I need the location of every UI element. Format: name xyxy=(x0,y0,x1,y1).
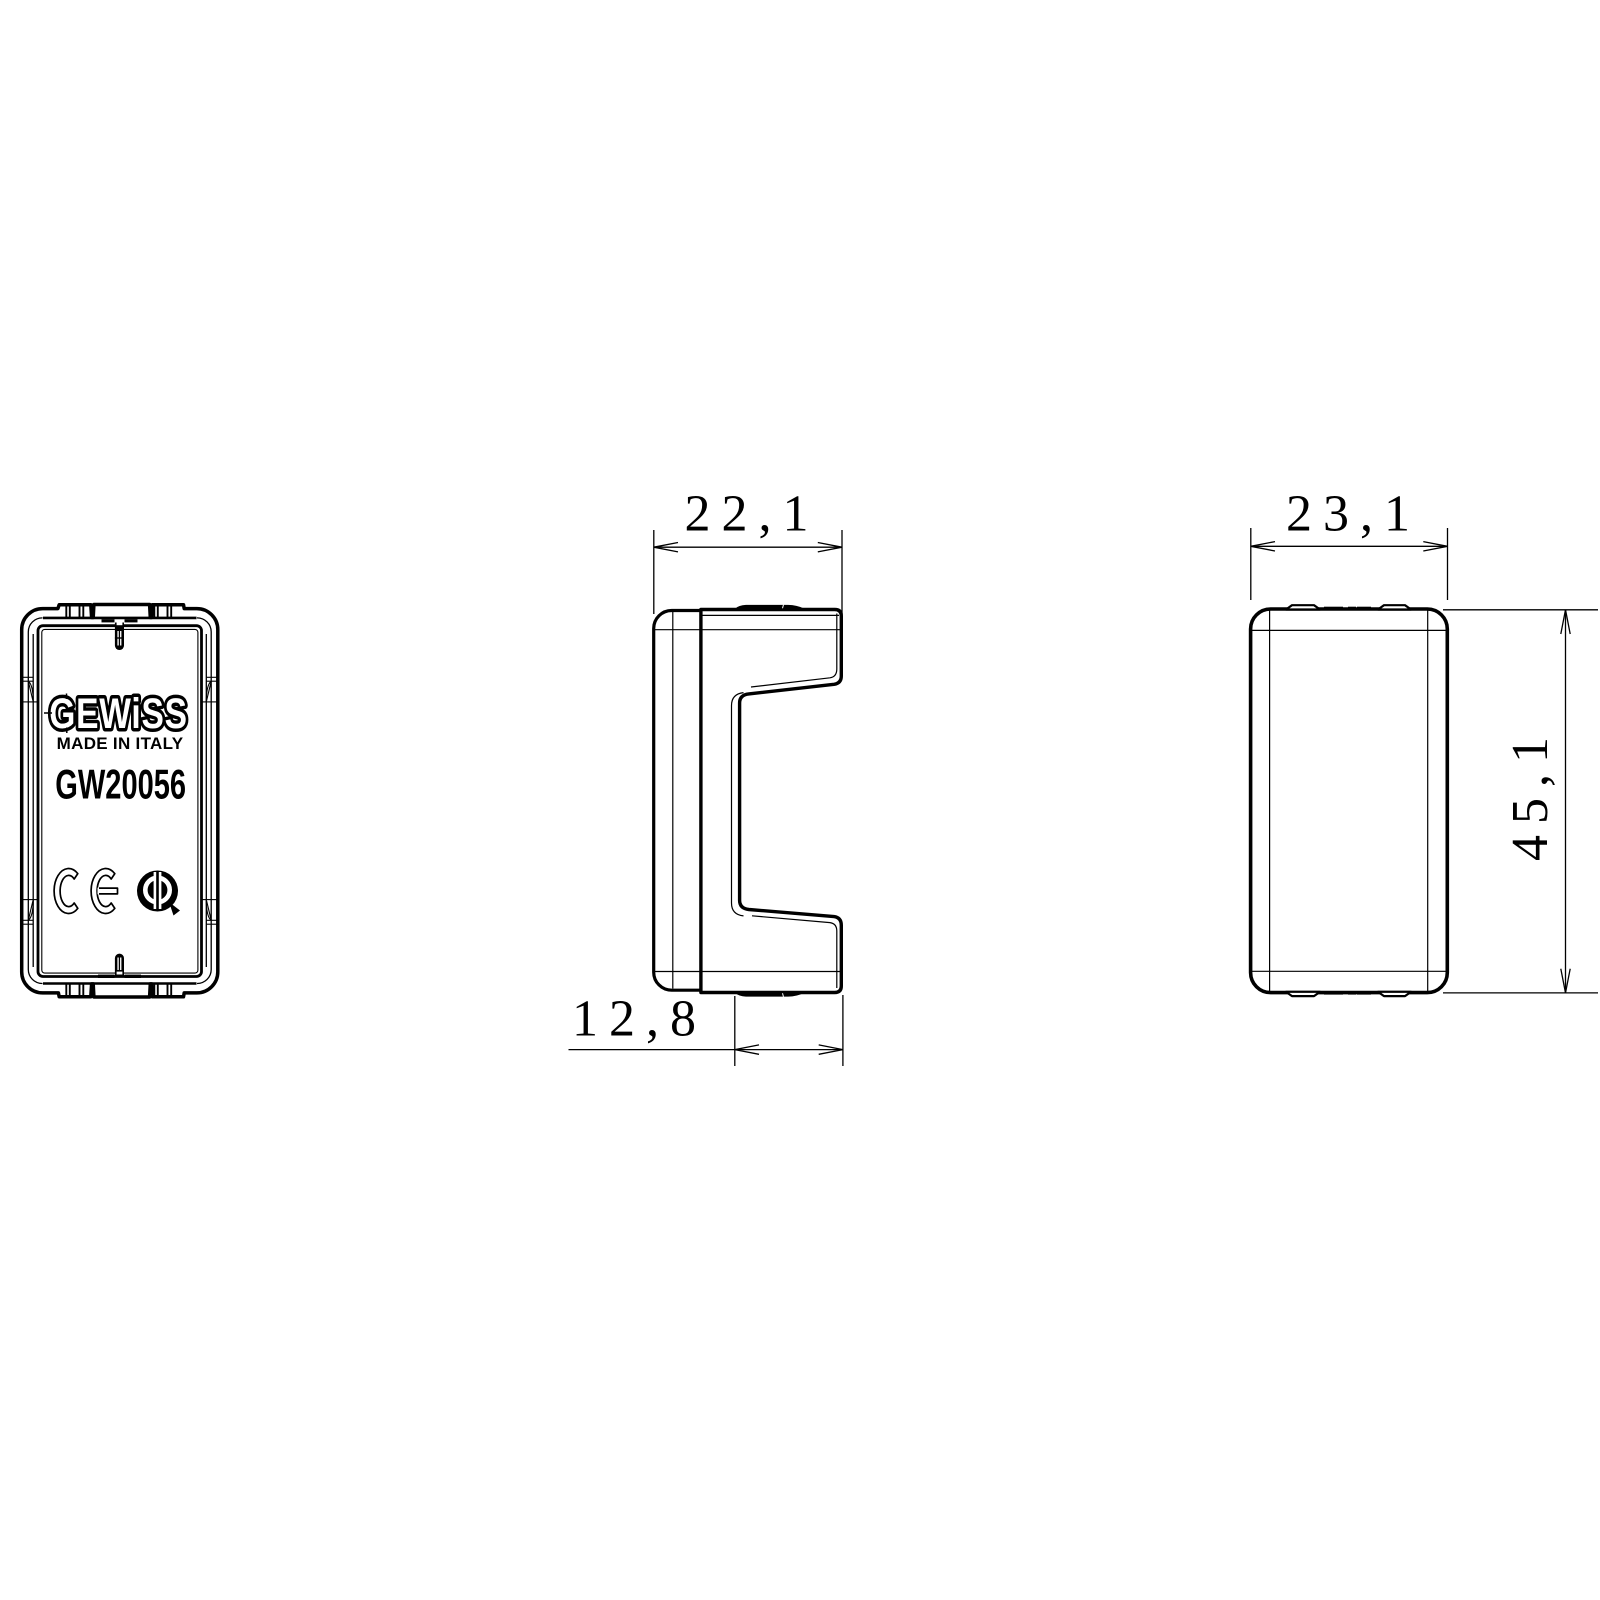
svg-text:45,1: 45,1 xyxy=(1502,726,1559,861)
svg-text:23,1: 23,1 xyxy=(1286,486,1421,543)
svg-text:22,1: 22,1 xyxy=(685,486,820,543)
svg-text:GW20056: GW20056 xyxy=(55,761,186,807)
svg-text:GEWiSS: GEWiSS xyxy=(49,690,188,738)
svg-text:MADE IN ITALY: MADE IN ITALY xyxy=(57,734,184,753)
svg-text:12,8: 12,8 xyxy=(572,991,707,1048)
